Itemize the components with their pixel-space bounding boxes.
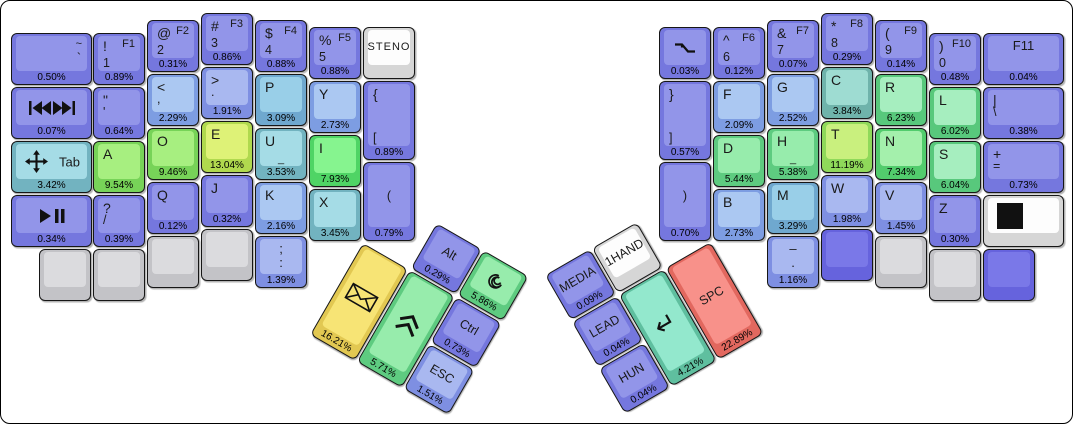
key-rbrace-label: } xyxy=(669,87,674,101)
key-blank-l4[interactable] xyxy=(201,229,253,281)
key-a-label: A xyxy=(103,147,112,161)
key-num0-label: 0 xyxy=(939,57,946,70)
keytop: D xyxy=(718,138,760,173)
keytop: ;: xyxy=(260,239,302,274)
key-h-label: H xyxy=(777,134,787,148)
keytop: ) xyxy=(664,165,706,227)
key-z[interactable]: Z0.30% xyxy=(929,195,981,247)
key-m-usage-pct: 3.29% xyxy=(768,221,818,232)
key-period-usage-pct: 1.91% xyxy=(202,106,252,117)
key-x-usage-pct: 3.45% xyxy=(310,228,360,239)
key-j-label: J xyxy=(211,181,218,195)
keytop: !F11 xyxy=(98,36,140,71)
key-num9-usage-pct: 0.14% xyxy=(876,59,926,70)
keytop: Q xyxy=(152,185,194,220)
key-plus[interactable]: +=0.73% xyxy=(983,141,1064,193)
key-slash[interactable]: ?/0.39% xyxy=(93,195,145,247)
key-z-label: Z xyxy=(939,201,948,215)
key-i[interactable]: I7.93% xyxy=(309,135,361,187)
key-y[interactable]: Y2.73% xyxy=(309,81,361,133)
key-lparen[interactable]: (0.79% xyxy=(363,162,415,241)
key-y-label: Y xyxy=(319,87,328,101)
key-tab-label: Tab xyxy=(59,155,80,168)
key-j-usage-pct: 0.32% xyxy=(202,214,252,225)
key-v[interactable]: V1.45% xyxy=(875,182,927,234)
key-num3-usage-pct: 0.86% xyxy=(202,52,252,63)
keytop xyxy=(16,90,87,125)
key-n[interactable]: N7.34% xyxy=(875,128,927,180)
key-g-usage-pct: 2.52% xyxy=(768,113,818,124)
keytop: J xyxy=(206,178,248,213)
key-semicolon[interactable]: ;:1.39% xyxy=(255,236,307,288)
play-pause-icon xyxy=(16,198,87,233)
key-comma[interactable]: <,2.29% xyxy=(147,74,199,126)
key-f11-label: F11 xyxy=(988,39,1059,52)
keytop: |\ xyxy=(988,90,1059,125)
key-blank-r1[interactable] xyxy=(821,229,873,281)
key-blank-r3[interactable] xyxy=(929,249,981,301)
key-rbrace-usage-pct: 0.57% xyxy=(660,147,710,158)
key-tilde-usage-pct: 0.50% xyxy=(12,72,91,83)
keytop: Z xyxy=(934,198,976,233)
keytop: T xyxy=(826,124,868,159)
key-w-usage-pct: 1.98% xyxy=(822,214,872,225)
key-comma-label: , xyxy=(157,93,160,106)
key-num1-usage-pct: 0.89% xyxy=(94,72,144,83)
keytop: "' xyxy=(98,90,140,125)
keytop xyxy=(880,239,922,274)
key-f-usage-pct: 2.09% xyxy=(714,120,764,131)
key-u[interactable]: U_3.53% xyxy=(255,128,307,180)
key-period[interactable]: >.1.91% xyxy=(201,67,253,119)
key-semicolon-label: : xyxy=(260,256,302,269)
key-w-label: W xyxy=(831,181,844,195)
key-e[interactable]: E13.04% xyxy=(201,121,253,173)
key-o-label: O xyxy=(157,134,168,148)
keytop: $F44 xyxy=(260,23,302,58)
key-num9-label: F9 xyxy=(904,26,917,37)
key-num0-label: ) xyxy=(939,39,944,53)
key-u-label: _ xyxy=(260,154,302,165)
key-c-label: C xyxy=(831,73,841,87)
key-num0-usage-pct: 0.48% xyxy=(930,72,980,83)
key-tilde[interactable]: ~`0.50% xyxy=(11,33,92,85)
key-period-label: . xyxy=(211,86,214,99)
keytop xyxy=(826,232,868,267)
key-blank-l3[interactable] xyxy=(147,236,199,288)
key-num8-usage-pct: 0.29% xyxy=(822,52,872,63)
key-rbrace-label: ] xyxy=(669,132,672,145)
keytop: K xyxy=(260,185,302,220)
key-tab[interactable]: Tab3.42% xyxy=(11,141,92,193)
key-w[interactable]: W1.98% xyxy=(821,175,873,227)
key-pipe-usage-pct: 0.38% xyxy=(984,126,1063,137)
key-steno-label: STENO xyxy=(368,30,410,65)
key-b[interactable]: B2.73% xyxy=(713,189,765,241)
key-num3[interactable]: #F330.86% xyxy=(201,13,253,65)
key-g-label: G xyxy=(777,80,788,94)
key-d-usage-pct: 5.44% xyxy=(714,174,764,185)
key-t-label: T xyxy=(831,127,840,141)
key-k-usage-pct: 2.16% xyxy=(256,221,306,232)
key-num3-label: # xyxy=(211,19,219,33)
key-num2-label: 2 xyxy=(157,44,164,57)
key-q-label: Q xyxy=(157,188,168,202)
keytop: &F77 xyxy=(772,23,814,58)
key-a-usage-pct: 9.54% xyxy=(94,180,144,191)
key-lbrace[interactable]: {[0.89% xyxy=(363,81,415,160)
keytop: U_ xyxy=(260,131,302,166)
key-x[interactable]: X3.45% xyxy=(309,189,361,241)
key-num2[interactable]: @F220.31% xyxy=(147,20,199,72)
keytop: R xyxy=(880,77,922,112)
keytop: A xyxy=(98,144,140,179)
keytop: –. xyxy=(772,239,814,274)
key-skip-track[interactable]: 0.07% xyxy=(11,87,92,139)
key-tilde-label: ~ xyxy=(76,39,82,50)
key-b-label: B xyxy=(723,195,732,209)
key-b-usage-pct: 2.73% xyxy=(714,228,764,239)
keytop: ( xyxy=(368,165,410,227)
key-num4-usage-pct: 0.88% xyxy=(256,59,306,70)
key-e-label: E xyxy=(211,127,220,141)
key-t-usage-pct: 11.19% xyxy=(822,160,872,171)
keytop xyxy=(988,252,1030,287)
keytop: %F55 xyxy=(314,30,356,65)
key-stop-square[interactable] xyxy=(983,195,1064,247)
keytop: ?/ xyxy=(98,198,140,233)
key-num0-label: F10 xyxy=(952,39,971,50)
key-rparen[interactable]: )0.70% xyxy=(659,162,711,241)
key-num7-label: & xyxy=(777,26,786,40)
keytop xyxy=(44,252,86,287)
keyboard-heatmap-board: ~`0.50%!F110.89%@F220.31%#F330.86%$F440.… xyxy=(0,0,1073,424)
key-num5-label: 5 xyxy=(319,51,326,64)
key-o-usage-pct: 9.46% xyxy=(148,167,198,178)
key-falling-edge-usage-pct: 0.03% xyxy=(660,66,710,77)
keytop: C xyxy=(826,70,868,105)
key-r-label: R xyxy=(885,80,895,94)
keytop: STENO xyxy=(368,30,410,65)
keytop: Tab xyxy=(16,144,87,179)
keytop: *F88 xyxy=(826,16,868,51)
key-rparen-usage-pct: 0.70% xyxy=(660,228,710,239)
key-x-label: X xyxy=(319,195,328,209)
key-num3-label: 3 xyxy=(211,37,218,50)
key-num1-label: 1 xyxy=(103,57,110,70)
keytop: F11 xyxy=(988,36,1059,71)
keytop: O xyxy=(152,131,194,166)
key-num7-label: F7 xyxy=(796,26,809,37)
key-num7-usage-pct: 0.07% xyxy=(768,59,818,70)
keytop: }] xyxy=(664,84,706,146)
keytop: I xyxy=(314,138,356,173)
key-semicolon-label: ; xyxy=(260,242,302,255)
key-tilde-label: ` xyxy=(77,52,81,65)
key-lbrace-label: [ xyxy=(373,132,376,145)
keytop xyxy=(206,232,248,267)
key-num6-label: 6 xyxy=(723,51,730,64)
key-num4[interactable]: $F440.88% xyxy=(255,20,307,72)
key-comma-usage-pct: 2.29% xyxy=(148,113,198,124)
key-f[interactable]: F2.09% xyxy=(713,81,765,133)
key-num8[interactable]: *F880.29% xyxy=(821,13,873,65)
keytop: W xyxy=(826,178,868,213)
keytop xyxy=(934,252,976,287)
key-q[interactable]: Q0.12% xyxy=(147,182,199,234)
keytop xyxy=(152,239,194,274)
falling-edge-icon xyxy=(664,30,706,65)
black-square-icon xyxy=(988,198,1059,233)
key-blank-l2[interactable] xyxy=(93,249,145,301)
key-num8-label: 8 xyxy=(831,37,838,50)
key-semicolon-usage-pct: 1.39% xyxy=(256,275,306,286)
key-t[interactable]: T11.19% xyxy=(821,121,873,173)
keytop: 1HAND xyxy=(598,227,652,278)
key-blank-r4[interactable] xyxy=(983,249,1035,301)
key-q-usage-pct: 0.12% xyxy=(148,221,198,232)
key-plus-label: = xyxy=(993,160,1000,173)
key-onehand-label: 1HAND xyxy=(598,227,652,278)
key-pipe[interactable]: |\0.38% xyxy=(983,87,1064,139)
key-num2-usage-pct: 0.31% xyxy=(148,59,198,70)
keytop: @F22 xyxy=(152,23,194,58)
keytop: {[ xyxy=(368,84,410,146)
key-num9[interactable]: (F990.14% xyxy=(875,20,927,72)
key-num7[interactable]: &F770.07% xyxy=(767,20,819,72)
key-l-usage-pct: 6.02% xyxy=(930,126,980,137)
key-r[interactable]: R6.23% xyxy=(875,74,927,126)
keytop: L xyxy=(934,90,976,125)
key-lbrace-label: { xyxy=(373,87,378,101)
key-num6[interactable]: ^F660.12% xyxy=(713,27,765,79)
key-h[interactable]: H_5.38% xyxy=(767,128,819,180)
key-num5-label: % xyxy=(319,33,331,47)
key-y-usage-pct: 2.73% xyxy=(310,120,360,131)
key-num6-label: F6 xyxy=(742,33,755,44)
key-e-usage-pct: 13.04% xyxy=(202,160,252,171)
keytop xyxy=(98,252,140,287)
key-d[interactable]: D5.44% xyxy=(713,135,765,187)
key-blank-l1[interactable] xyxy=(39,249,91,301)
key-a[interactable]: A9.54% xyxy=(93,141,145,193)
key-steno[interactable]: STENO xyxy=(363,27,415,79)
key-rparen-label: ) xyxy=(664,165,706,227)
key-num8-label: * xyxy=(831,19,836,33)
key-z-usage-pct: 0.30% xyxy=(930,234,980,245)
key-num5-label: F5 xyxy=(338,33,351,44)
key-s[interactable]: S6.04% xyxy=(929,141,981,193)
key-plus-usage-pct: 0.73% xyxy=(984,180,1063,191)
key-s-usage-pct: 6.04% xyxy=(930,180,980,191)
key-p-usage-pct: 3.09% xyxy=(256,113,306,124)
key-num1-label: ! xyxy=(103,39,107,53)
key-dash-label: – xyxy=(772,242,814,255)
key-m[interactable]: M3.29% xyxy=(767,182,819,234)
keytop: ~` xyxy=(16,36,87,71)
keytop xyxy=(664,30,706,65)
key-lparen-usage-pct: 0.79% xyxy=(364,228,414,239)
key-num9-label: 9 xyxy=(885,44,892,57)
key-num4-label: F4 xyxy=(284,26,297,37)
keytop: V xyxy=(880,185,922,220)
key-h-label: _ xyxy=(772,154,814,165)
key-f11[interactable]: F110.04% xyxy=(983,33,1064,85)
key-tab-usage-pct: 3.42% xyxy=(12,180,91,191)
key-p[interactable]: P3.09% xyxy=(255,74,307,126)
key-i-label: I xyxy=(319,141,323,155)
key-c-usage-pct: 3.84% xyxy=(822,106,872,117)
key-num3-label: F3 xyxy=(230,19,243,30)
key-pipe-label: \ xyxy=(993,106,996,119)
key-num4-label: $ xyxy=(265,26,273,40)
key-num4-label: 4 xyxy=(265,44,272,57)
key-g[interactable]: G2.52% xyxy=(767,74,819,126)
keytop: >. xyxy=(206,70,248,105)
key-num0[interactable]: )F1000.48% xyxy=(929,33,981,85)
key-j[interactable]: J0.32% xyxy=(201,175,253,227)
key-f-label: F xyxy=(723,87,732,101)
key-n-usage-pct: 7.34% xyxy=(876,167,926,178)
key-num2-label: F2 xyxy=(176,26,189,37)
key-p-label: P xyxy=(265,80,274,94)
keytop: B xyxy=(718,192,760,227)
key-lparen-label: ( xyxy=(368,165,410,227)
key-n-label: N xyxy=(885,134,895,148)
key-lbrace-usage-pct: 0.89% xyxy=(364,147,414,158)
keytop: (F99 xyxy=(880,23,922,58)
key-num7-label: 7 xyxy=(777,44,784,57)
keytop: ^F66 xyxy=(718,30,760,65)
key-u-label: U xyxy=(265,134,275,148)
key-num1[interactable]: !F110.89% xyxy=(93,33,145,85)
key-num6-usage-pct: 0.12% xyxy=(714,66,764,77)
key-v-usage-pct: 1.45% xyxy=(876,221,926,232)
keytop: F xyxy=(718,84,760,119)
keytop: Y xyxy=(314,84,356,119)
key-k[interactable]: K2.16% xyxy=(255,182,307,234)
key-quote-usage-pct: 0.64% xyxy=(94,126,144,137)
key-k-label: K xyxy=(265,188,274,202)
key-num8-label: F8 xyxy=(850,19,863,30)
key-o[interactable]: O9.46% xyxy=(147,128,199,180)
key-v-label: V xyxy=(885,188,894,202)
key-d-label: D xyxy=(723,141,733,155)
keytop: <, xyxy=(152,77,194,112)
keytop: += xyxy=(988,144,1059,179)
keytop: E xyxy=(206,124,248,159)
key-slash-usage-pct: 0.39% xyxy=(94,234,144,245)
keytop: X xyxy=(314,192,356,227)
key-quote-label: ' xyxy=(103,106,105,119)
key-skip-track-usage-pct: 0.07% xyxy=(12,126,91,137)
key-l[interactable]: L6.02% xyxy=(929,87,981,139)
key-blank-r2[interactable] xyxy=(875,236,927,288)
keytop: )F100 xyxy=(934,36,976,71)
key-quote[interactable]: "'0.64% xyxy=(93,87,145,139)
key-play-pause-usage-pct: 0.34% xyxy=(12,234,91,245)
key-c[interactable]: C3.84% xyxy=(821,67,873,119)
key-u-usage-pct: 3.53% xyxy=(256,167,306,178)
keytop: G xyxy=(772,77,814,112)
key-num5[interactable]: %F550.88% xyxy=(309,27,361,79)
key-i-usage-pct: 7.93% xyxy=(310,174,360,185)
key-falling-edge[interactable]: 0.03% xyxy=(659,27,711,79)
keytop: P xyxy=(260,77,302,112)
key-num1-label: F1 xyxy=(122,39,135,50)
keytop xyxy=(16,198,87,233)
skip-track-icon xyxy=(16,90,87,125)
key-m-label: M xyxy=(777,188,789,202)
key-num6-label: ^ xyxy=(723,33,730,47)
key-f11-usage-pct: 0.04% xyxy=(984,72,1063,83)
key-dash[interactable]: –.1.16% xyxy=(767,236,819,288)
keytop: N xyxy=(880,131,922,166)
keytop: H_ xyxy=(772,131,814,166)
key-num5-usage-pct: 0.88% xyxy=(310,66,360,77)
key-r-usage-pct: 6.23% xyxy=(876,113,926,124)
key-num2-label: @ xyxy=(157,26,171,40)
key-h-usage-pct: 5.38% xyxy=(768,167,818,178)
keytop: #F33 xyxy=(206,16,248,51)
key-slash-label: / xyxy=(103,214,106,227)
key-s-label: S xyxy=(939,147,948,161)
key-rbrace[interactable]: }]0.57% xyxy=(659,81,711,160)
key-dash-usage-pct: 1.16% xyxy=(768,275,818,286)
key-l-label: L xyxy=(939,93,947,107)
keytop: S xyxy=(934,144,976,179)
key-num9-label: ( xyxy=(885,26,890,40)
keytop xyxy=(988,198,1059,233)
key-dash-label: . xyxy=(772,256,814,269)
keytop: M xyxy=(772,185,814,220)
key-play-pause[interactable]: 0.34% xyxy=(11,195,92,247)
